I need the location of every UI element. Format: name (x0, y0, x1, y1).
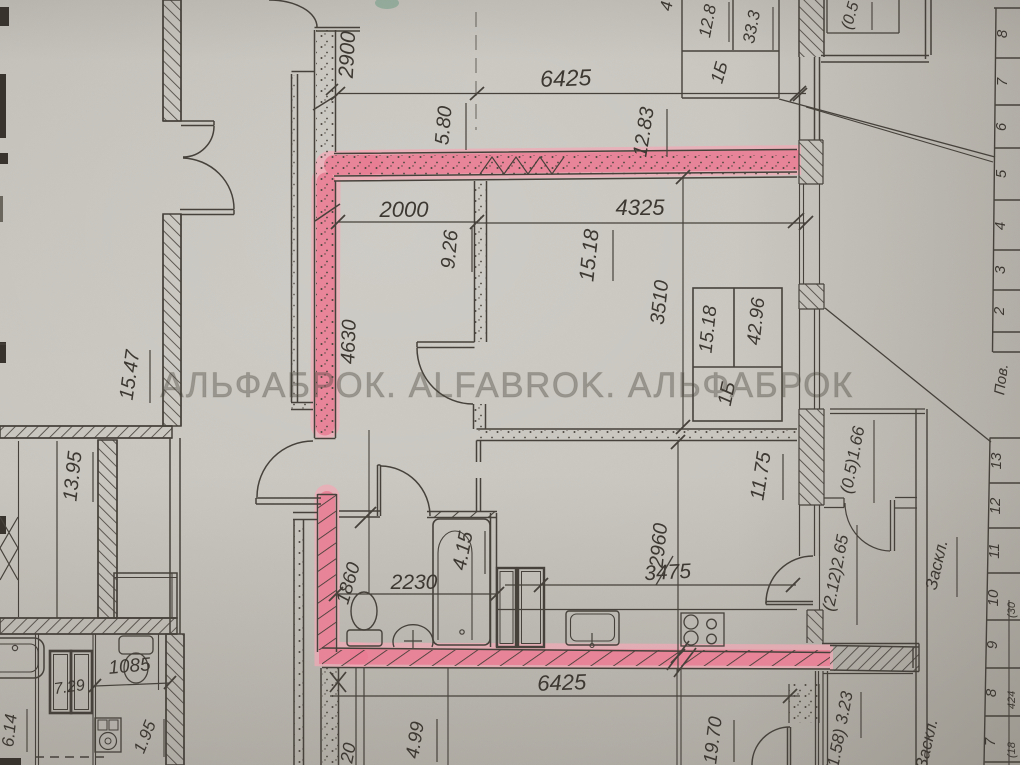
svg-text:6: 6 (993, 122, 1010, 131)
svg-text:6425: 6425 (540, 64, 592, 92)
svg-text:4: 4 (992, 222, 1009, 230)
svg-text:4630: 4630 (337, 319, 361, 364)
svg-text:2230: 2230 (390, 571, 438, 594)
svg-text:8: 8 (983, 688, 1000, 697)
svg-text:6.14: 6.14 (0, 713, 21, 748)
svg-text:20: 20 (336, 741, 360, 765)
svg-text:11: 11 (986, 543, 1003, 559)
svg-text:9: 9 (984, 640, 1001, 649)
svg-text:9.26: 9.26 (437, 228, 462, 270)
svg-text:13: 13 (988, 452, 1005, 469)
svg-text:7: 7 (994, 77, 1011, 86)
svg-text:(30: (30 (1006, 601, 1018, 618)
svg-text:АЛЬФАБРОК. ALFABROK. АЛЬФАБРОК: АЛЬФАБРОК. ALFABROK. АЛЬФАБРОК (160, 366, 853, 405)
svg-text:6425: 6425 (537, 669, 588, 696)
svg-text:3: 3 (992, 265, 1009, 274)
svg-text:5.80: 5.80 (431, 105, 456, 146)
svg-text:424: 424 (1006, 691, 1018, 709)
svg-text:2900: 2900 (335, 30, 360, 79)
svg-text:3510: 3510 (647, 279, 674, 326)
svg-text:2: 2 (991, 306, 1008, 316)
svg-text:7: 7 (982, 737, 999, 746)
svg-text:12: 12 (987, 497, 1004, 514)
svg-text:8: 8 (994, 29, 1011, 38)
svg-text:4325: 4325 (616, 195, 666, 220)
svg-text:(18: (18 (1006, 741, 1018, 758)
svg-text:1085: 1085 (108, 654, 152, 679)
svg-text:5: 5 (993, 169, 1010, 178)
svg-text:2000: 2000 (379, 197, 430, 222)
svg-text:10: 10 (985, 589, 1002, 606)
